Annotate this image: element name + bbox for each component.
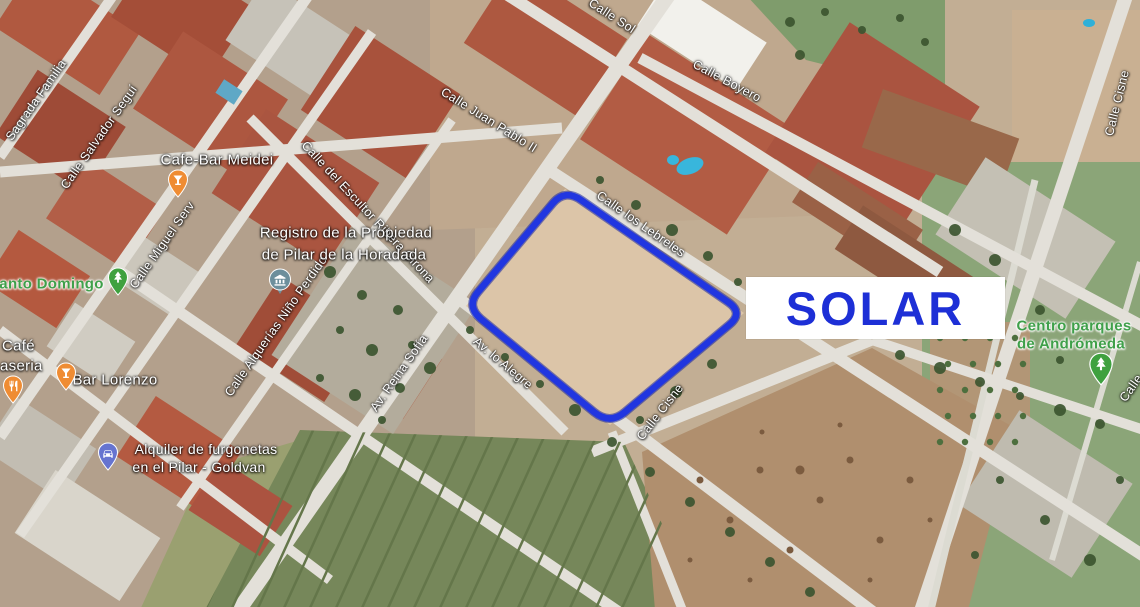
street-label-reina-sofia: Av. Reina Sofía (367, 332, 430, 414)
poi-label-cafe-line2[interactable]: aseria (0, 358, 43, 375)
poi-label-goldvan-line1[interactable]: Alquiler de furgonetas (135, 441, 278, 457)
restaurant-pin-icon[interactable] (2, 375, 24, 404)
street-label-cisne-right: Calle Cisne (1102, 69, 1132, 138)
poi-label-bar-lorenzo[interactable]: Bar Lorenzo (72, 372, 157, 389)
street-label-boyero: Calle Boyero (691, 57, 764, 105)
street-label-miguel-servet: Calle Miguel Serv (127, 199, 198, 291)
goldvan-car-rental-pin-icon[interactable] (97, 442, 119, 471)
poi-label-andromeda-line1[interactable]: Centro parques (1016, 318, 1131, 335)
street-label-sol: Calle Sol (586, 0, 638, 36)
bar-lorenzo-drink-pin-icon[interactable] (55, 362, 77, 391)
satellite-map-canvas[interactable]: Sagrada Familia Calle Salvador Seguí Cal… (0, 0, 1140, 607)
street-label-salvador-segui: Calle Salvador Seguí (58, 82, 140, 191)
poi-label-andromeda-line2[interactable]: de Andrómeda (1017, 336, 1125, 353)
poi-label-santo-domingo[interactable]: Santo Domingo (0, 276, 104, 293)
andromeda-park-tree-pin-icon[interactable] (1088, 352, 1114, 386)
poi-label-cafe-line1[interactable]: Café (2, 338, 35, 355)
poi-label-registro-line1[interactable]: Registro de la Propiedad (260, 225, 432, 242)
poi-label-goldvan-line2[interactable]: en el Pilar - Goldvan (132, 459, 265, 475)
street-label-cisne-bottom: Calle Cisne (634, 381, 686, 443)
street-label-partial-right: Calle (1117, 372, 1140, 405)
street-label-los-lebreles: Calle los Lebreles (594, 188, 688, 260)
cafe-bar-meidei-drink-pin-icon[interactable] (167, 169, 189, 198)
solar-label-box: SOLAR (746, 277, 1005, 339)
santo-domingo-park-tree-pin-icon[interactable] (107, 267, 129, 296)
street-label-sagrada-familia: Sagrada Familia (3, 57, 69, 143)
street-label-juan-pablo-ii: Calle Juan Pablo II (438, 85, 539, 156)
poi-label-cafe-bar-meidei[interactable]: Cafe-Bar Meidei (161, 152, 274, 169)
registro-civic-building-pin-icon[interactable] (268, 268, 292, 296)
poi-label-registro-line2[interactable]: de Pilar de la Horadada (262, 247, 427, 264)
solar-label-text: SOLAR (786, 285, 966, 332)
street-label-lo-alegre: Av. lo Alegre (471, 334, 536, 392)
